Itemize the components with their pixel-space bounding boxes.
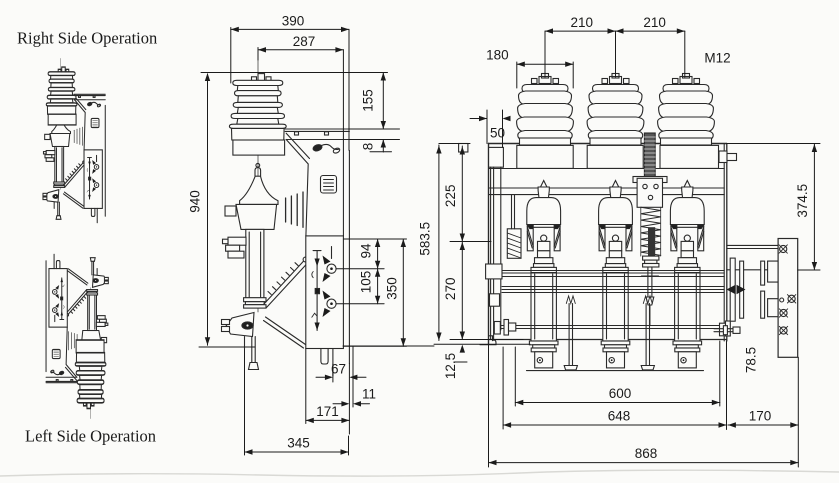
svg-text:171: 171 <box>316 404 339 419</box>
svg-text:225: 225 <box>443 185 458 208</box>
svg-text:Left Side Operation: Left Side Operation <box>25 427 156 446</box>
svg-text:105: 105 <box>359 271 374 294</box>
svg-text:M12: M12 <box>704 51 730 66</box>
svg-text:12.5: 12.5 <box>443 353 458 379</box>
svg-text:170: 170 <box>749 409 772 424</box>
svg-text:600: 600 <box>609 386 632 401</box>
svg-text:287: 287 <box>293 34 316 49</box>
svg-text:868: 868 <box>635 446 658 461</box>
svg-text:155: 155 <box>361 89 376 112</box>
svg-text:648: 648 <box>608 409 631 424</box>
svg-text:78.5: 78.5 <box>744 347 759 373</box>
svg-text:8: 8 <box>361 143 376 151</box>
svg-text:210: 210 <box>571 15 594 30</box>
svg-text:583.5: 583.5 <box>418 222 433 256</box>
svg-text:180: 180 <box>486 48 509 63</box>
svg-text:345: 345 <box>287 436 310 451</box>
svg-text:210: 210 <box>643 15 666 30</box>
svg-text:Right Side Operation: Right Side Operation <box>17 29 157 48</box>
svg-text:270: 270 <box>443 278 458 301</box>
svg-text:11: 11 <box>362 387 376 402</box>
svg-text:350: 350 <box>385 277 400 300</box>
svg-text:940: 940 <box>188 190 203 213</box>
svg-text:50: 50 <box>490 126 505 141</box>
svg-text:67: 67 <box>331 362 346 377</box>
svg-text:94: 94 <box>359 243 374 259</box>
svg-text:390: 390 <box>282 14 305 29</box>
svg-text:374.5: 374.5 <box>795 184 810 218</box>
